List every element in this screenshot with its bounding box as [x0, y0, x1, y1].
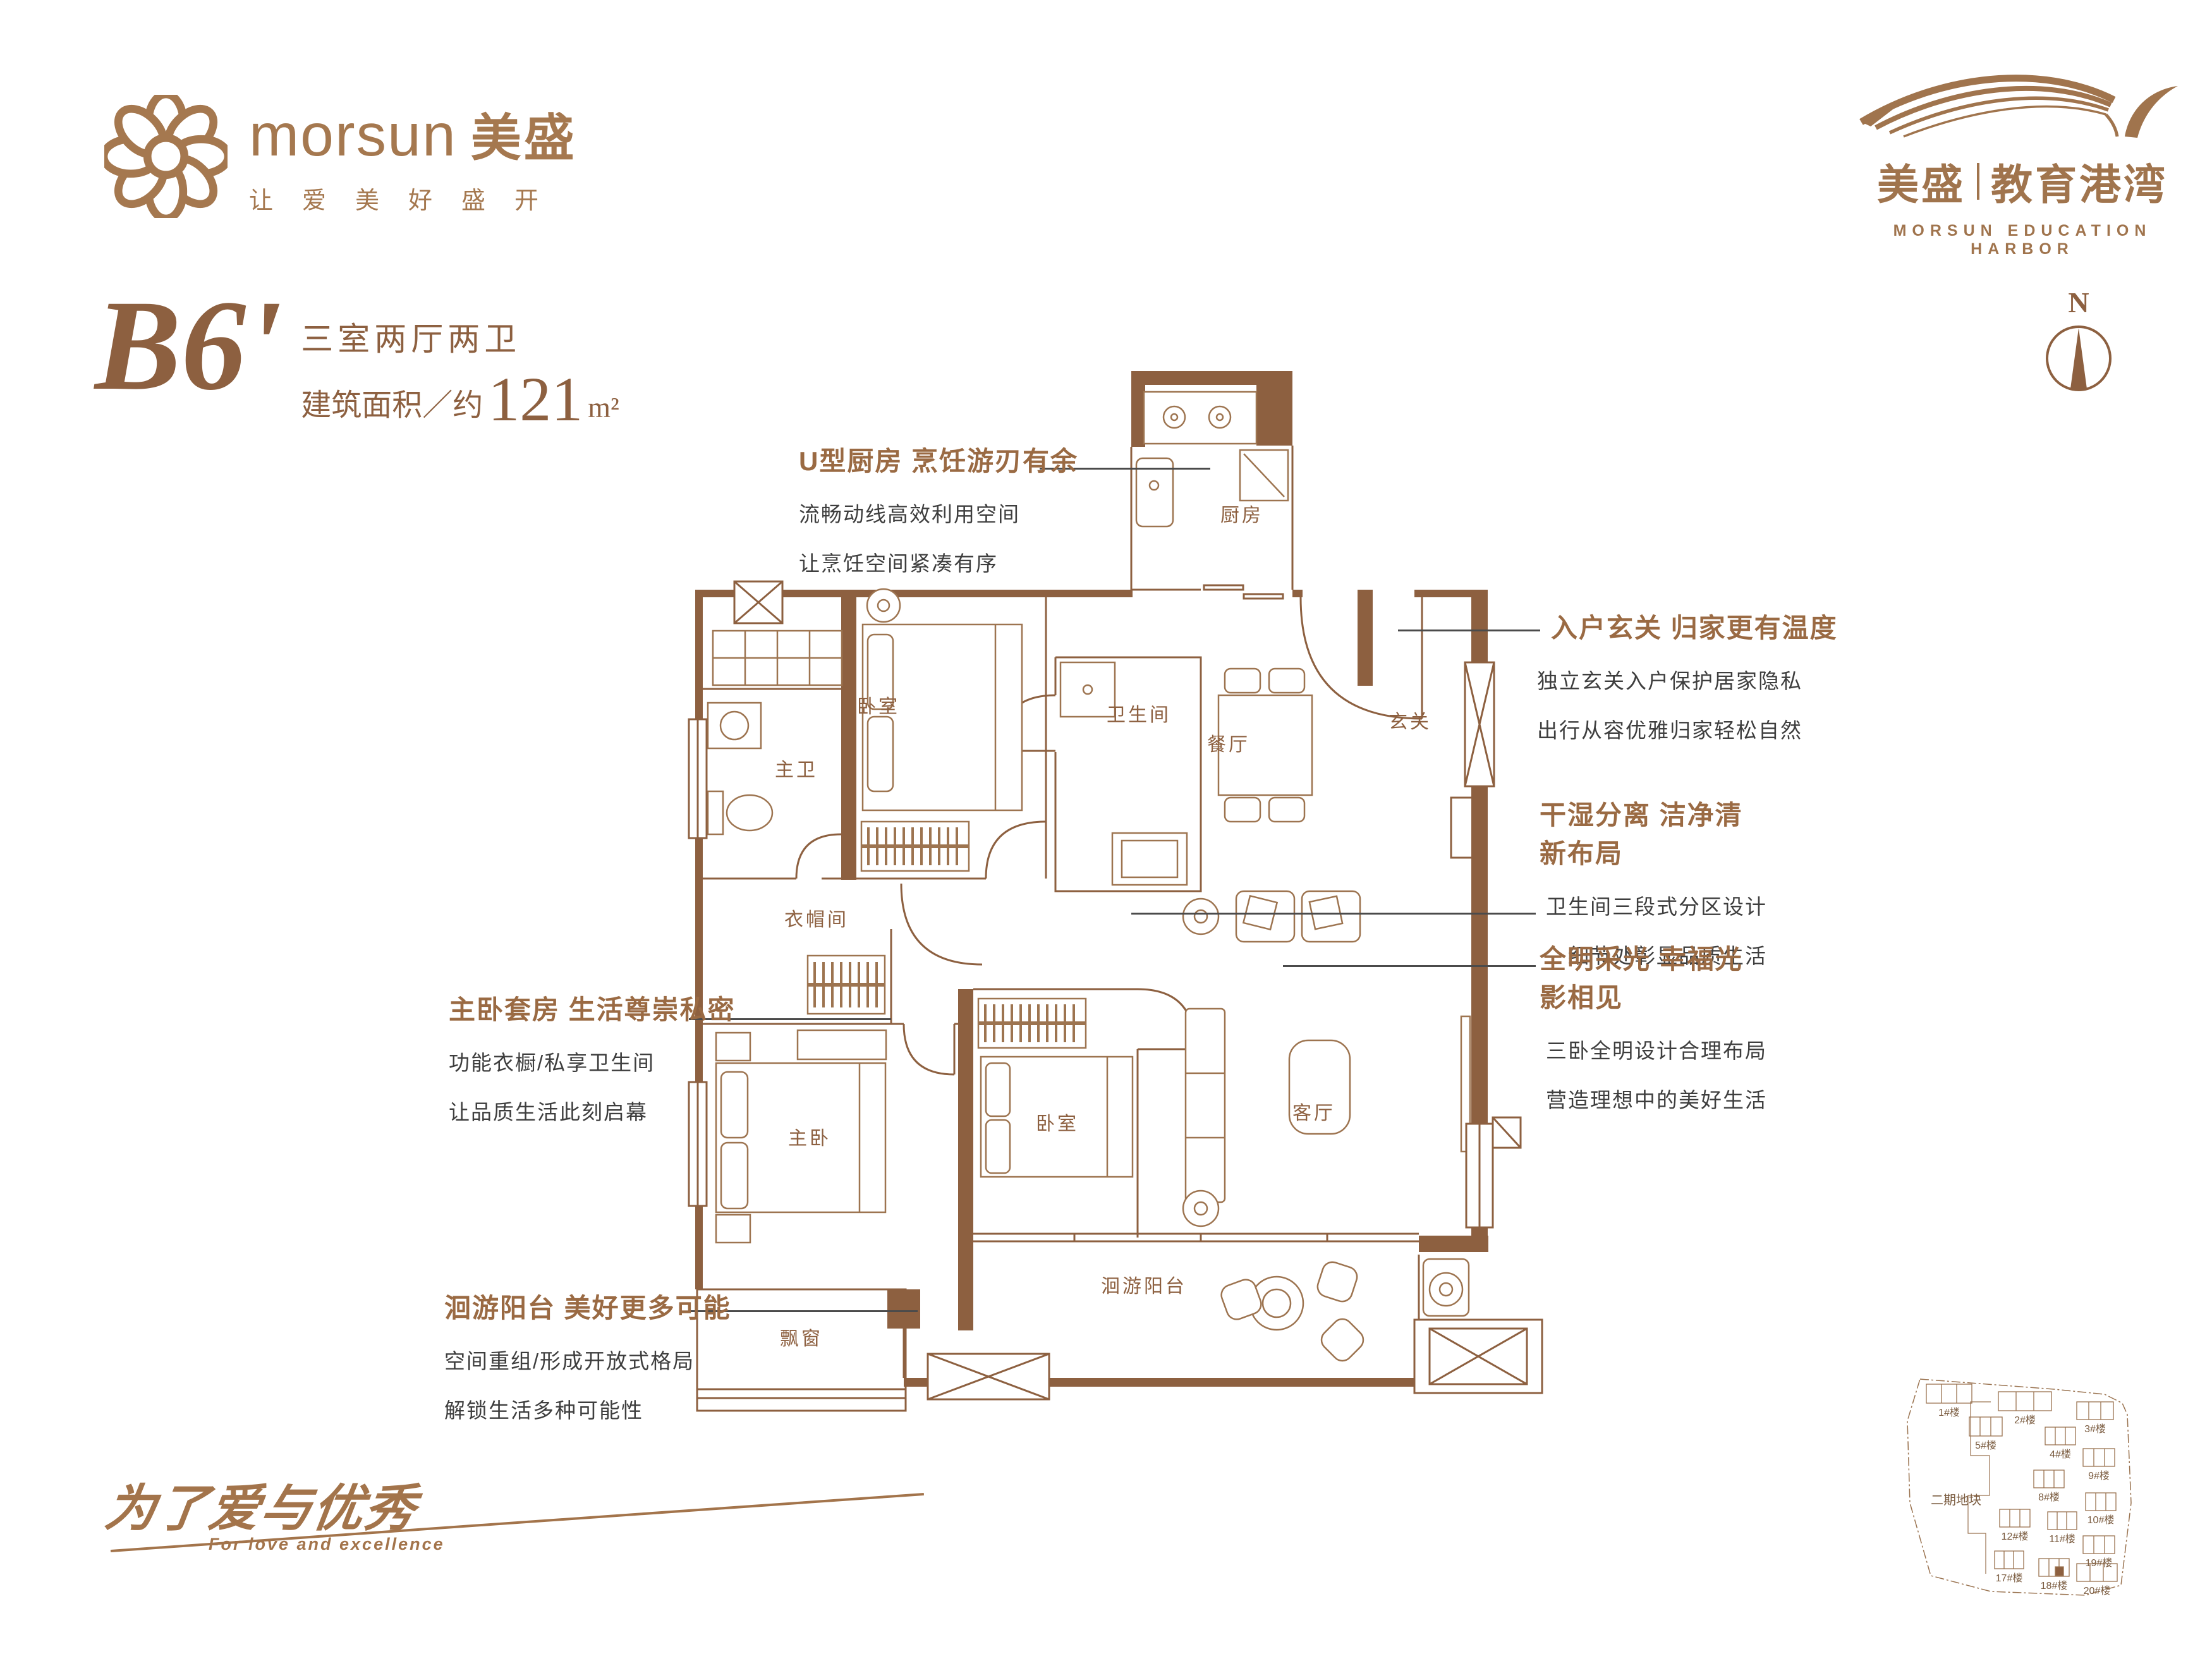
room-label-cloakroom: 衣帽间 — [784, 910, 849, 930]
brand-text: morsun 美盛 让爱美好盛开 — [249, 97, 577, 216]
compass-north-label: N — [2040, 286, 2117, 319]
room-label-master-bedroom: 主卧 — [788, 1128, 831, 1149]
building-label: 17#楼 — [1996, 1573, 2023, 1584]
callout-master-suite: 主卧套房 生活尊崇私密 功能衣橱/私享卫生间 让品质生活此刻启幕 — [449, 989, 736, 1126]
room-label-balcony: 洄游阳台 — [1101, 1276, 1187, 1297]
brand-right-en: MORSUN EDUCATION HARBOR — [1852, 222, 2193, 259]
callout-daylight: 全明采光 幸福光影相见 三卧全明设计合理布局 营造理想中的美好生活 — [1540, 938, 1767, 1114]
leader-line — [1398, 630, 1540, 631]
unit-area-prefix: 建筑面积／约 — [301, 380, 483, 424]
building-label: 20#楼 — [2084, 1585, 2111, 1597]
callout-title: 主卧套房 生活尊崇私密 — [449, 989, 736, 1027]
callout-title: 入户玄关 归家更有温度 — [1537, 607, 1838, 645]
unit-area-value: 121 — [488, 375, 583, 424]
wing-icon — [1852, 56, 2193, 144]
callout-foyer: 入户玄关 归家更有温度 独立玄关入户保护居家隐私 出行从容优雅归家轻松自然 — [1537, 607, 1838, 744]
brand-name-en: morsun — [249, 101, 457, 170]
building-label: 3#楼 — [2084, 1423, 2106, 1435]
callout-title: 全明采光 幸福光影相见 — [1540, 938, 1767, 1015]
siteplan-inset: 1#楼 2#楼 3#楼 4#楼 5#楼 8#楼 9#楼 10#楼 11#楼 12… — [1896, 1313, 2187, 1604]
building-label: 2#楼 — [2014, 1415, 2036, 1426]
building-label: 11#楼 — [2049, 1533, 2075, 1545]
brand-logo-morsun: morsun 美盛 让爱美好盛开 — [104, 95, 577, 218]
callout-kitchen: U型厨房 烹饪游刃有余 流畅动线高效利用空间 让烹饪空间紧凑有序 — [799, 440, 1078, 577]
leader-line — [1131, 913, 1536, 915]
leader-line — [1283, 965, 1536, 967]
callout-line: 功能衣橱/私享卫生间 — [449, 1046, 736, 1076]
callout-line: 营造理想中的美好生活 — [1540, 1083, 1767, 1114]
callout-line: 让品质生活此刻启幕 — [449, 1095, 736, 1126]
compass-icon — [2040, 319, 2117, 398]
room-label-foyer: 玄关 — [1389, 712, 1431, 733]
building-label: 12#楼 — [2002, 1531, 2029, 1542]
highlighted-unit — [2055, 1567, 2063, 1576]
brand-right-cn2: 教育港湾 — [1991, 151, 2168, 212]
callout-title: 干湿分离 洁净清新布局 — [1540, 794, 1767, 871]
callout-title: U型厨房 烹饪游刃有余 — [799, 440, 1078, 478]
building-label: 18#楼 — [2041, 1580, 2068, 1591]
room-label-kitchen: 厨房 — [1220, 505, 1263, 526]
slogan-en: For love and excellence — [209, 1535, 445, 1554]
building-label: 8#楼 — [2038, 1492, 2060, 1503]
callout-line: 出行从容优雅归家轻松自然 — [1537, 714, 1838, 744]
building-label: 4#楼 — [2050, 1449, 2071, 1460]
building-label: 1#楼 — [1938, 1407, 1960, 1418]
callout-line: 独立玄关入户保护居家隐私 — [1537, 664, 1838, 695]
site-labels: 1#楼 2#楼 3#楼 4#楼 5#楼 8#楼 9#楼 10#楼 11#楼 12… — [1931, 1407, 2114, 1597]
room-label-living: 客厅 — [1292, 1103, 1335, 1124]
flower-icon — [104, 95, 228, 218]
building-label: 19#楼 — [2086, 1557, 2113, 1569]
room-label-bedroom-top: 卧室 — [857, 697, 900, 717]
brand-logo-education-harbor: 美盛 教育港湾 MORSUN EDUCATION HARBOR — [1852, 56, 2193, 259]
floorplan-poster: morsun 美盛 让爱美好盛开 美盛 教育港湾 MORSUN EDUCATIO… — [0, 0, 2212, 1661]
building-label: 5#楼 — [1975, 1440, 1996, 1451]
room-label-bedroom-bottom: 卧室 — [1036, 1114, 1079, 1135]
callout-line: 卫生间三段式分区设计 — [1540, 890, 1767, 920]
callout-balcony: 洄游阳台 美好更多可能 空间重组/形成开放式格局 解锁生活多种可能性 — [444, 1287, 731, 1424]
brand-right-cn1: 美盛 — [1877, 151, 1966, 212]
slogan-cn: 为了爱与优秀 — [101, 1468, 422, 1541]
unit-layout: 三室两厅两卫 — [301, 313, 619, 360]
brand-name-cn: 美盛 — [471, 97, 577, 171]
callout-line: 三卧全明设计合理布局 — [1540, 1034, 1767, 1064]
building-label: 9#楼 — [2088, 1470, 2110, 1482]
callout-line: 让烹饪空间紧凑有序 — [799, 547, 1078, 577]
unit-area-unit: m² — [588, 391, 619, 424]
building-label: 10#楼 — [2087, 1514, 2115, 1526]
unit-area: 建筑面积／约 121 m² — [301, 375, 619, 424]
callout-line: 解锁生活多种可能性 — [444, 1394, 731, 1424]
divider — [1977, 163, 1979, 200]
callout-line: 流畅动线高效利用空间 — [799, 497, 1078, 528]
brand-tagline: 让爱美好盛开 — [249, 181, 577, 216]
phase-label: 二期地块 — [1931, 1493, 1981, 1507]
callout-line: 空间重组/形成开放式格局 — [444, 1344, 731, 1375]
room-label-bathroom: 卫生间 — [1107, 705, 1171, 726]
room-label-dining: 餐厅 — [1207, 734, 1250, 755]
compass: N — [2040, 286, 2117, 401]
room-label-bay-window: 飘窗 — [780, 1329, 823, 1349]
unit-header: B6' 三室两厅两卫 建筑面积／约 121 m² — [95, 288, 619, 424]
room-label-master-bath: 主卫 — [775, 760, 818, 781]
unit-code: B6' — [95, 288, 282, 424]
callout-title: 洄游阳台 美好更多可能 — [444, 1287, 731, 1325]
